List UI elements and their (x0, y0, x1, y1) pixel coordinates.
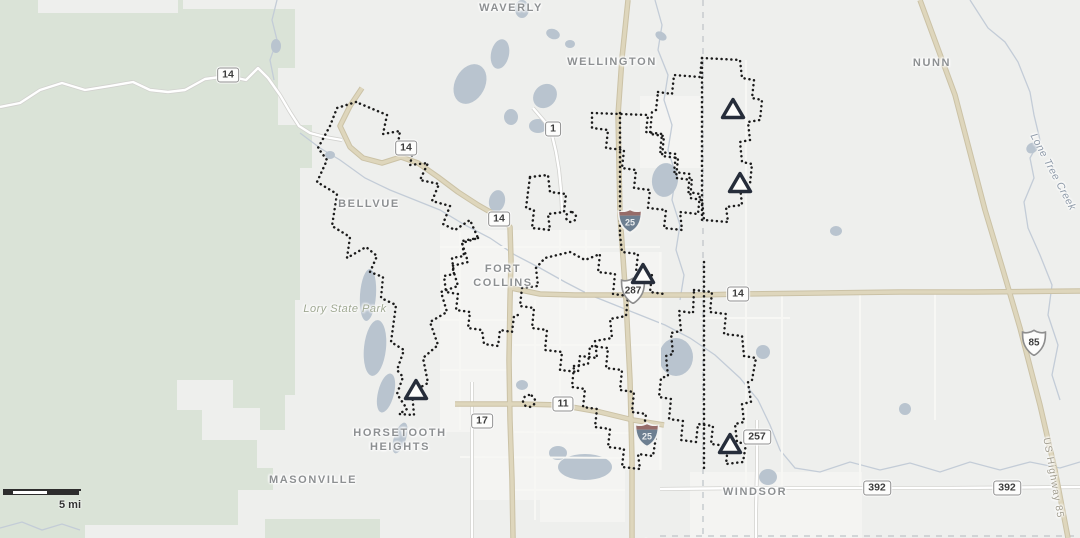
highway-shield-257: 257 (743, 430, 771, 445)
place-label-fort-collins: FORTCOLLINS (473, 262, 532, 290)
scale-bar-segment (13, 491, 47, 495)
highway-shield-17: 17 (471, 414, 493, 429)
svg-text:287: 287 (625, 286, 642, 297)
svg-text:25: 25 (642, 432, 652, 442)
place-label-lory-state-park: Lory State Park (303, 303, 386, 315)
scale-bar-label: 5 mi (3, 499, 81, 511)
place-label-windsor: WINDSOR (723, 486, 787, 498)
highway-shield-14: 14 (217, 68, 239, 83)
place-label-bellvue: BELLVUE (338, 198, 400, 210)
highway-shield-1: 1 (545, 122, 561, 137)
highway-shield-11: 11 (552, 397, 573, 412)
place-label-horsetooth-heights: HORSETOOTHHEIGHTS (353, 426, 446, 454)
place-label-us-highway-85: US Highway 85 (1040, 437, 1065, 520)
place-label-wellington: WELLINGTON (567, 56, 657, 68)
map-overlay: 141414141171125739239228785252525WAVERLY… (0, 0, 1080, 538)
highway-shield-392: 392 (993, 481, 1021, 496)
map-viewport[interactable]: 141414141171125739239228785252525WAVERLY… (0, 0, 1080, 538)
place-label-nunn: NUNN (913, 57, 951, 69)
highway-shield-14: 14 (395, 141, 417, 156)
place-label-waverly: WAVERLY (479, 2, 543, 14)
scale-bar-segment (3, 491, 13, 495)
scale-bar: 5 mi (3, 489, 81, 511)
highway-shield-14: 14 (488, 212, 510, 227)
scale-bar-segment (47, 491, 79, 495)
scale-bar-graphic (3, 489, 81, 496)
highway-shield-14: 14 (727, 287, 749, 302)
svg-text:85: 85 (1028, 338, 1040, 349)
svg-text:25: 25 (625, 218, 635, 228)
place-label-lone-tree-creek: Lone Tree Creek (1028, 131, 1079, 212)
highway-shield-392: 392 (863, 481, 891, 496)
place-label-masonville: MASONVILLE (269, 474, 357, 486)
